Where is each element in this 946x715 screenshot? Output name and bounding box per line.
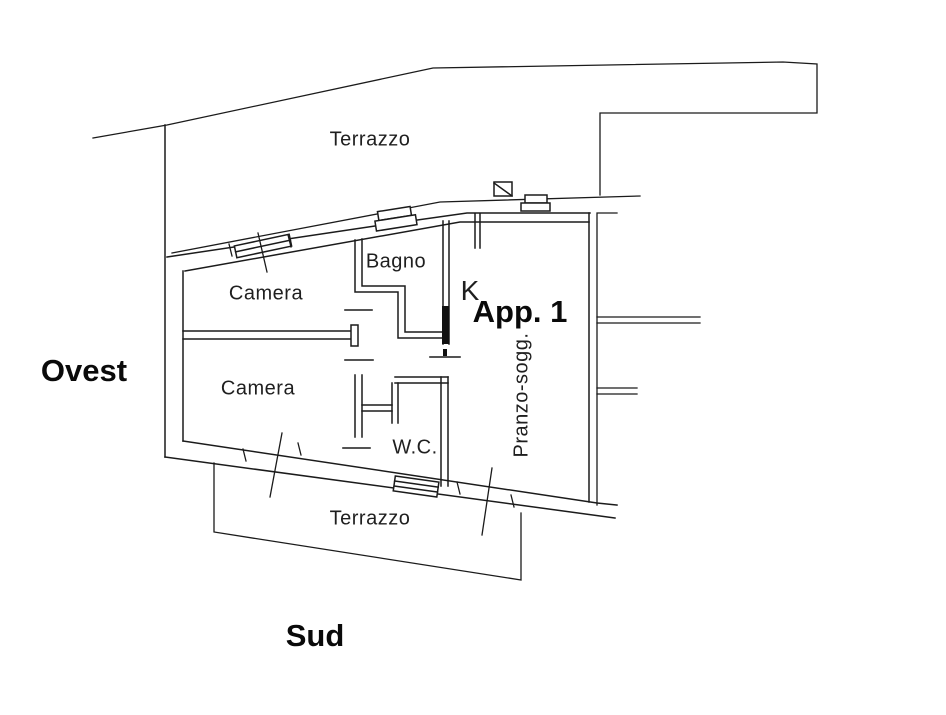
wall-between-cameras [183, 331, 352, 339]
kitchen-door-leaf [442, 306, 449, 344]
wall-end-cap [351, 325, 358, 346]
wc-wall-top [395, 377, 448, 383]
wc-wall-left [355, 375, 362, 437]
exterior-walls [93, 62, 817, 580]
floorplan-canvas: Terrazzo Camera Bagno K Pranzo-sogg. Cam… [0, 0, 946, 715]
label-wc: W.C. [392, 437, 437, 460]
kitchen-door-nub [443, 349, 447, 356]
terrace-top-boundary [93, 62, 817, 195]
neighbor-stub-walls [597, 317, 700, 394]
neighbor-wall-vertical [597, 213, 617, 505]
label-apartment-1: App. 1 [473, 294, 568, 330]
label-terrazzo-bottom: Terrazzo [330, 508, 411, 531]
floorplan-drawing [0, 0, 946, 715]
kitchen-niche-wall [475, 214, 480, 248]
wc-wall-cross [362, 405, 392, 411]
window-pranzo-top [521, 195, 550, 211]
wc-wall-right [441, 377, 448, 486]
label-compass-west: Ovest [41, 353, 127, 389]
window-bottom-louver [393, 476, 439, 497]
wc-wall-inner [392, 383, 398, 423]
label-pranzo-soggiorno: Pranzo-sogg. [511, 333, 534, 458]
label-camera-upper: Camera [229, 283, 303, 306]
label-terrazzo-top: Terrazzo [330, 129, 411, 152]
label-camera-lower: Camera [221, 378, 295, 401]
label-compass-south: Sud [286, 618, 345, 654]
window-bagno-top [374, 206, 417, 231]
chimney-symbol [494, 182, 512, 196]
label-bagno: Bagno [366, 251, 426, 274]
